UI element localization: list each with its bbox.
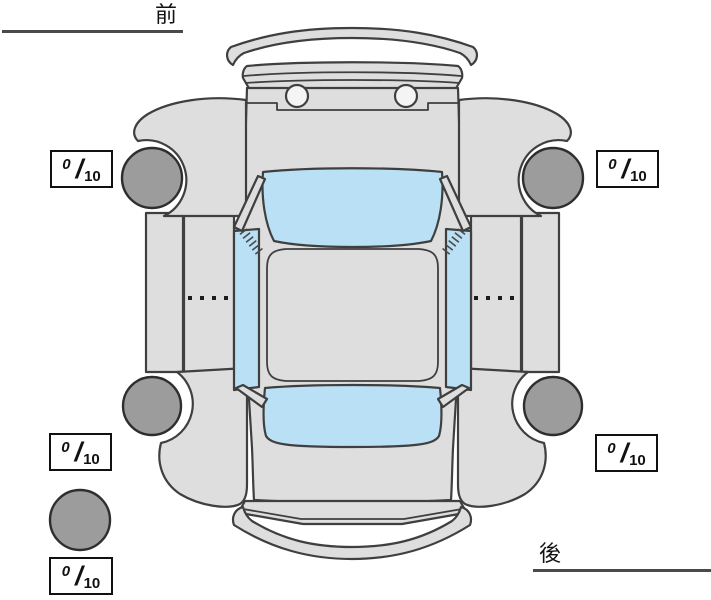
right-door-panel — [471, 213, 521, 393]
front-bumper-strip — [227, 28, 477, 65]
tread-value: 0 — [62, 563, 70, 580]
tread-score-box-rear-right: 0/10 — [595, 434, 658, 472]
car-top-view — [0, 0, 711, 600]
tread-max: 10 — [630, 168, 647, 185]
left-headlight — [286, 85, 308, 107]
tread-max: 10 — [84, 168, 101, 185]
tread-max: 10 — [83, 451, 100, 468]
front-right-tire — [523, 148, 583, 208]
tread-value: 0 — [607, 440, 615, 457]
tread-value: 0 — [61, 439, 69, 456]
tread-slash: / — [622, 156, 630, 183]
right-sill-panel — [522, 213, 559, 372]
tread-slash: / — [621, 440, 629, 467]
tread-max: 10 — [629, 452, 646, 469]
tread-score-box-front-right: 0/10 — [596, 150, 659, 188]
left-sill-panel — [146, 213, 183, 372]
tread-value: 0 — [608, 156, 616, 173]
car-condition-diagram: 前 後 0/10 0/10 0/10 0/10 0/10 — [0, 0, 711, 600]
left-side-window-glass — [234, 229, 259, 390]
front-orientation-label: 前 — [2, 2, 183, 33]
tread-score-box-front-left: 0/10 — [50, 150, 113, 188]
rear-right-tire — [524, 377, 582, 435]
front-cowl-panel — [243, 62, 463, 90]
left-door-panel — [184, 213, 234, 393]
tread-slash: / — [75, 439, 83, 466]
spare-tire — [50, 490, 110, 550]
right-headlight — [395, 85, 417, 107]
windshield-glass — [262, 168, 442, 247]
tread-max: 10 — [84, 575, 101, 592]
front-label-text: 前 — [155, 2, 177, 27]
tread-slash: / — [75, 563, 83, 590]
rear-left-tire — [123, 377, 181, 435]
rear-label-text: 後 — [539, 541, 561, 566]
rear-bumper-inner-band — [241, 501, 464, 524]
rear-window-glass — [264, 385, 442, 447]
tread-slash: / — [76, 156, 84, 183]
tread-value: 0 — [62, 156, 70, 173]
front-left-tire — [122, 148, 182, 208]
right-side-window-glass — [446, 229, 471, 390]
rear-orientation-label: 後 — [533, 541, 711, 572]
tread-score-box-rear-left: 0/10 — [49, 433, 112, 471]
tread-score-box-spare: 0/10 — [49, 557, 113, 595]
